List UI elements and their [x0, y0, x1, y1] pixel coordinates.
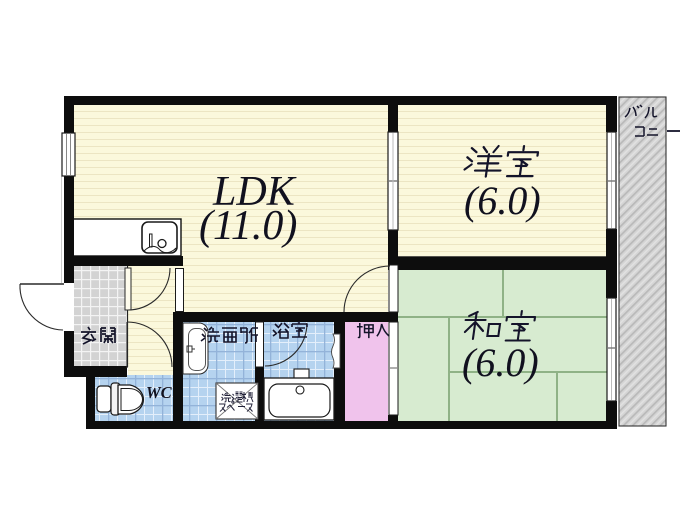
svg-text:(6.0): (6.0)	[464, 178, 541, 223]
svg-text:(11.0): (11.0)	[199, 203, 297, 249]
svg-text:WC: WC	[146, 383, 173, 402]
svg-text:(6.0): (6.0)	[462, 340, 539, 385]
